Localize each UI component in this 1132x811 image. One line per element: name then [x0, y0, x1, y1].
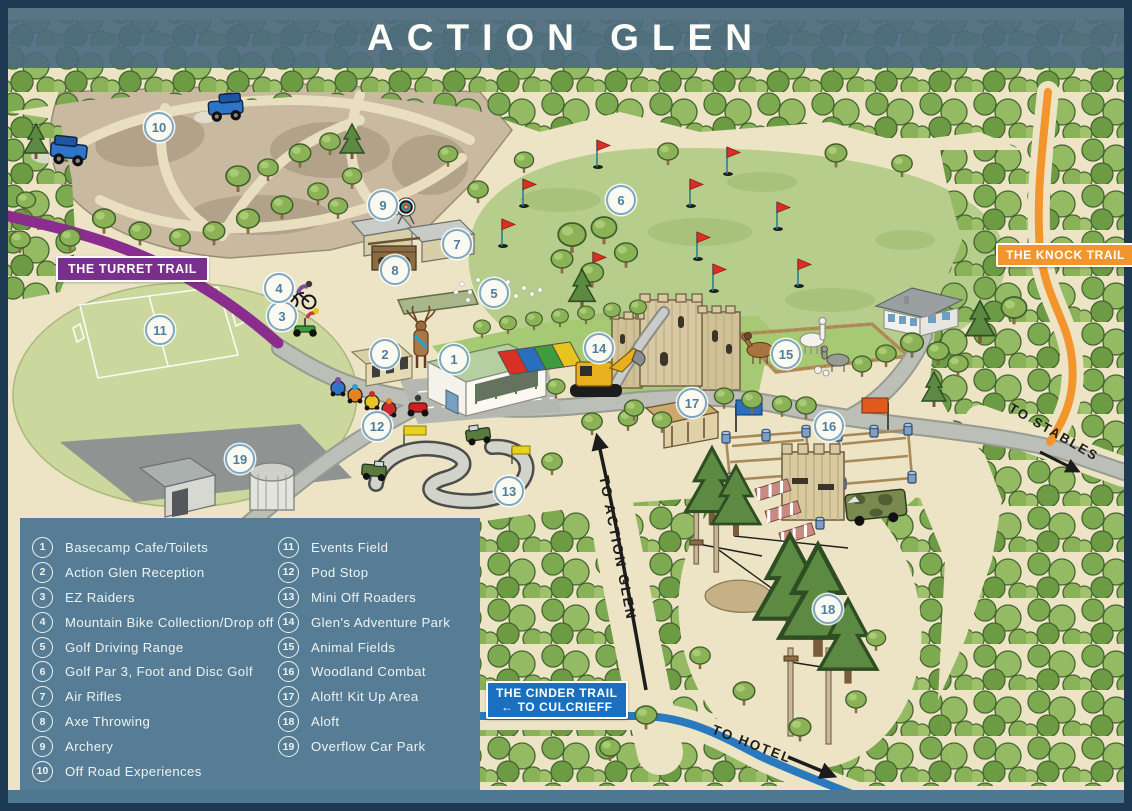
legend-item-number: 19 — [278, 736, 299, 757]
legend-item-label: Events Field — [311, 540, 388, 555]
legend-item: 7Air Rifles — [32, 684, 274, 709]
legend-item: 3EZ Raiders — [32, 585, 274, 610]
map-marker-11: 11 — [145, 315, 175, 345]
map-marker-18: 18 — [813, 594, 843, 624]
legend-item-label: Pod Stop — [311, 565, 368, 580]
legend-item-label: Overflow Car Park — [311, 739, 426, 754]
legend-panel: 1Basecamp Cafe/Toilets2Action Glen Recep… — [20, 518, 480, 790]
legend-item-label: Action Glen Reception — [65, 565, 205, 580]
legend-item-label: Air Rifles — [65, 689, 122, 704]
map-marker-13: 13 — [494, 476, 524, 506]
title-banner: ACTION GLEN — [8, 8, 1124, 68]
legend-item-label: Archery — [65, 739, 113, 754]
legend-item-number: 16 — [278, 661, 299, 682]
legend-item: 17Aloft! Kit Up Area — [278, 684, 450, 709]
legend-item: 16Woodland Combat — [278, 659, 450, 684]
legend-item-label: Basecamp Cafe/Toilets — [65, 540, 208, 555]
legend-item-label: Aloft — [311, 714, 339, 729]
map-marker-10: 10 — [144, 112, 174, 142]
legend-item-label: Golf Par 3, Foot and Disc Golf — [65, 664, 253, 679]
legend-item: 6Golf Par 3, Foot and Disc Golf — [32, 659, 274, 684]
legend-item-number: 10 — [32, 761, 53, 782]
legend-item: 19Overflow Car Park — [278, 734, 450, 759]
map-marker-14: 14 — [584, 333, 614, 363]
legend-item: 13Mini Off Roaders — [278, 585, 450, 610]
legend-item-number: 7 — [32, 686, 53, 707]
knock-trail-label: THE KNOCK TRAIL — [1006, 248, 1125, 262]
legend-item: 11Events Field — [278, 535, 450, 560]
legend-item-number: 2 — [32, 562, 53, 583]
turret-trail-label: THE TURRET TRAIL — [68, 262, 197, 276]
cinder-trail-label-2: ← TO CULCRIEFF — [496, 700, 618, 714]
legend-item-label: Axe Throwing — [65, 714, 150, 729]
legend-item-number: 12 — [278, 562, 299, 583]
legend-item: 18Aloft — [278, 709, 450, 734]
bottom-band — [8, 790, 1124, 803]
legend-item: 12Pod Stop — [278, 560, 450, 585]
legend-item: 5Golf Driving Range — [32, 635, 274, 660]
legend-item-number: 5 — [32, 637, 53, 658]
cinder-trail-badge: THE CINDER TRAIL ← TO CULCRIEFF — [486, 681, 628, 719]
legend-item-number: 8 — [32, 711, 53, 732]
map-marker-8: 8 — [380, 255, 410, 285]
map-marker-7: 7 — [442, 229, 472, 259]
legend-item-label: Animal Fields — [311, 640, 395, 655]
map-marker-19: 19 — [225, 444, 255, 474]
legend-item-label: EZ Raiders — [65, 590, 135, 605]
legend-item-label: Woodland Combat — [311, 664, 426, 679]
legend-column-1: 1Basecamp Cafe/Toilets2Action Glen Recep… — [32, 535, 274, 784]
map-marker-5: 5 — [479, 278, 509, 308]
knock-trail-badge: THE KNOCK TRAIL — [996, 243, 1132, 267]
legend-item: 2Action Glen Reception — [32, 560, 274, 585]
legend-item-number: 15 — [278, 637, 299, 658]
legend-item: 1Basecamp Cafe/Toilets — [32, 535, 274, 560]
legend-item-label: Mountain Bike Collection/Drop off — [65, 615, 274, 630]
legend-item: 9Archery — [32, 734, 274, 759]
map-marker-1: 1 — [439, 344, 469, 374]
cinder-trail-label-1: THE CINDER TRAIL — [496, 686, 618, 700]
map-marker-9: 9 — [368, 190, 398, 220]
turret-trail-badge: THE TURRET TRAIL — [56, 256, 209, 282]
legend-item: 4Mountain Bike Collection/Drop off — [32, 610, 274, 635]
legend-item: 10Off Road Experiences — [32, 759, 274, 784]
legend-item-number: 11 — [278, 537, 299, 558]
legend-item-number: 1 — [32, 537, 53, 558]
legend-item: 8Axe Throwing — [32, 709, 274, 734]
legend-item-number: 18 — [278, 711, 299, 732]
map-marker-4: 4 — [264, 273, 294, 303]
map-marker-17: 17 — [677, 388, 707, 418]
legend-item-label: Mini Off Roaders — [311, 590, 416, 605]
legend-item-label: Glen's Adventure Park — [311, 615, 450, 630]
legend-item-label: Off Road Experiences — [65, 764, 202, 779]
legend-item-label: Golf Driving Range — [65, 640, 184, 655]
legend-item-number: 6 — [32, 661, 53, 682]
map-marker-3: 3 — [267, 301, 297, 331]
legend-item: 15Animal Fields — [278, 635, 450, 660]
map-marker-16: 16 — [814, 411, 844, 441]
map-marker-12: 12 — [362, 411, 392, 441]
legend-item-number: 13 — [278, 587, 299, 608]
map-marker-6: 6 — [606, 185, 636, 215]
map-marker-2: 2 — [370, 339, 400, 369]
legend-column-2: 11Events Field12Pod Stop13Mini Off Roade… — [278, 535, 450, 759]
page-title: ACTION GLEN — [367, 17, 765, 59]
legend-item-number: 4 — [32, 612, 53, 633]
legend-item-number: 17 — [278, 686, 299, 707]
legend-item-number: 3 — [32, 587, 53, 608]
legend-item-number: 14 — [278, 612, 299, 633]
map-marker-15: 15 — [771, 339, 801, 369]
legend-item: 14Glen's Adventure Park — [278, 610, 450, 635]
legend-item-number: 9 — [32, 736, 53, 757]
legend-item-label: Aloft! Kit Up Area — [311, 689, 419, 704]
